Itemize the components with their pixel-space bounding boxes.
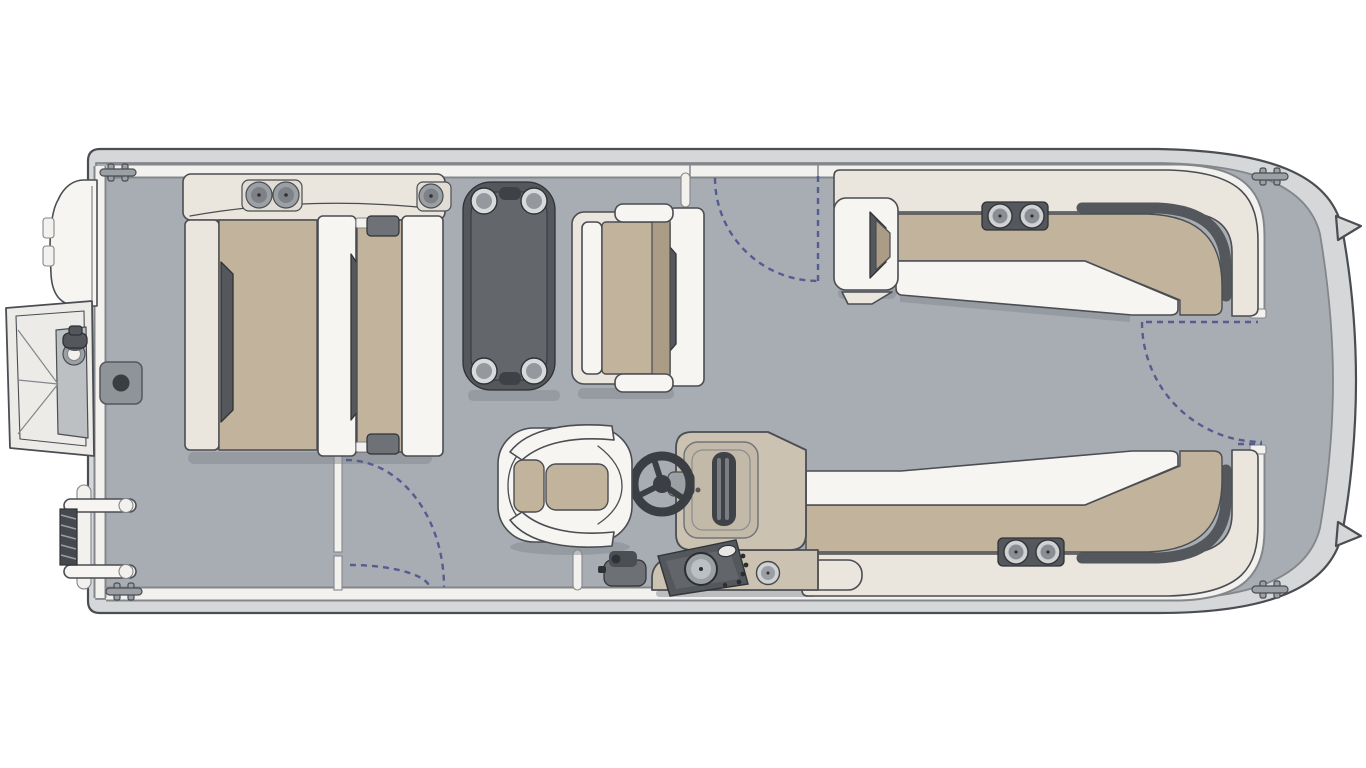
dash-knob — [696, 488, 701, 493]
bow-seat-inset — [221, 262, 233, 422]
companion-bench — [572, 204, 704, 392]
bench-hinge-bottom-b — [367, 434, 399, 454]
bench-backrest — [652, 216, 670, 380]
nav-light-top — [69, 326, 82, 335]
boat-floorplan — [0, 0, 1366, 768]
fence-partition-lower — [334, 556, 342, 590]
gauge-slit-2 — [725, 458, 729, 520]
floorplan-canvas — [0, 0, 1366, 768]
bench-edge — [582, 222, 602, 374]
bow-fin-top — [1336, 216, 1361, 240]
table-surface — [471, 192, 547, 380]
gauge-cluster — [712, 452, 736, 526]
ladder-rail-top-cap — [119, 499, 133, 513]
ski-tow-socket — [113, 375, 130, 392]
console-cup-holder-pin — [767, 572, 770, 575]
port-bow-lounge — [183, 174, 451, 456]
gauge-slit-1 — [717, 458, 721, 520]
helm-gauge-pin — [699, 567, 703, 571]
bench-cushion — [602, 222, 654, 374]
aft-upper-lounge — [834, 170, 1258, 316]
cocktail-table — [463, 182, 555, 390]
bow-lounge-headrest-bar — [183, 174, 445, 220]
ladder-rail-bottom-cap — [119, 565, 133, 579]
bench-hinge-top-b — [367, 216, 399, 236]
motor-mount-tab-1 — [43, 218, 54, 238]
bow-fin-bottom — [1336, 522, 1361, 546]
table-handle-top — [499, 187, 521, 200]
bench-hinge-top-a — [356, 218, 368, 228]
captains-chair — [498, 425, 632, 547]
bench-armrest-top — [615, 204, 673, 222]
bench-hinge-bottom-a — [356, 442, 368, 452]
throttle-knob — [612, 555, 621, 564]
motor-mount-tab-2 — [43, 246, 54, 266]
chair-back-cushion — [514, 460, 544, 512]
bench-armrest-bottom — [615, 374, 673, 392]
fence-post-helm — [573, 550, 582, 590]
bow-bench-cushion — [357, 220, 402, 452]
fence-partition-upper — [334, 456, 342, 552]
bow-bench-edge-left — [318, 216, 356, 456]
bow-seat-cushion — [219, 220, 317, 450]
bow-seat-backrest — [185, 220, 219, 450]
outboard-motor — [50, 180, 97, 306]
chair-seat-cushion — [546, 464, 608, 510]
fence-post-bow-gate — [681, 173, 690, 207]
aft-lower-lounge — [756, 450, 1258, 596]
table-handle-bottom — [499, 372, 521, 385]
shadow-table — [468, 390, 560, 401]
bow-bench-edge-right — [402, 216, 443, 456]
throttle-stem — [598, 566, 606, 573]
